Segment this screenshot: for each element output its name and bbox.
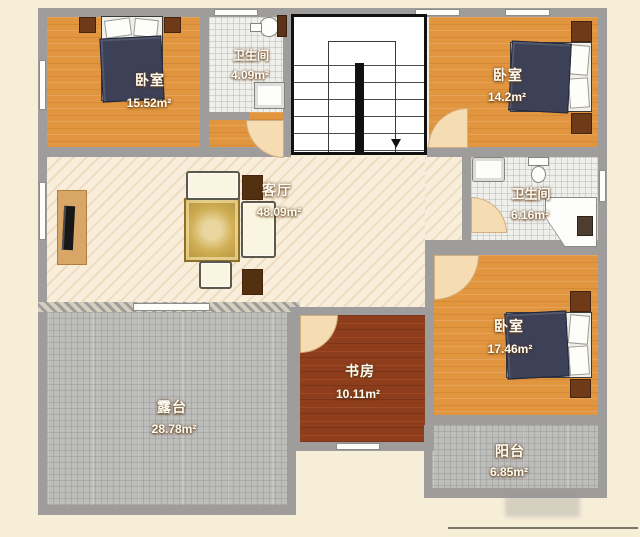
nightstand — [164, 17, 181, 33]
wall-study-left — [291, 307, 300, 449]
rug — [184, 198, 240, 262]
side-table — [242, 175, 263, 200]
shower-tray — [254, 82, 285, 109]
nightstand — [570, 379, 591, 398]
tv-icon — [62, 206, 75, 251]
room-area-bedroom-bottom-right: 17.46m² — [488, 342, 533, 356]
room-name-bathroom-right: 卫生间 — [511, 184, 550, 203]
sink — [472, 157, 505, 182]
room-area-bathroom-top: 4.09m² — [231, 68, 269, 82]
room-area-terrace: 28.78m² — [152, 422, 197, 436]
room-area-study: 10.11m² — [336, 387, 380, 401]
wall-study-top — [291, 307, 425, 315]
room-name-terrace: 露台 — [157, 397, 187, 417]
room-area-living-room: 48.09m² — [257, 205, 302, 219]
room-name-bedroom-top-right: 卧室 — [493, 65, 523, 85]
wall-bedroom3-bottom — [425, 415, 607, 425]
toilet-tank — [528, 157, 549, 166]
window-living-terrace — [133, 303, 210, 311]
wall-living-top-left — [38, 147, 291, 157]
room-area-balcony: 6.85m² — [490, 465, 528, 479]
floor-plan: 卧室 15.52m² 卫生间 4.09m² 卧室 14.2m² 客厅 48.09… — [0, 0, 640, 537]
watermark-smudge — [505, 493, 580, 517]
pillow — [104, 17, 132, 38]
nightstand — [570, 291, 591, 312]
bath-cabinet — [277, 15, 287, 37]
room-name-living-room: 客厅 — [262, 180, 292, 200]
nightstand — [571, 113, 592, 134]
pillow — [568, 314, 590, 345]
window-left-living — [39, 182, 46, 240]
bed-blanket — [99, 35, 164, 102]
room-name-study: 书房 — [345, 361, 375, 381]
window-right-bathroom — [599, 170, 606, 202]
wall-terrace-bottom — [38, 505, 296, 515]
armchair — [199, 261, 232, 289]
nightstand — [571, 21, 592, 42]
pillow — [568, 77, 590, 108]
wall-living-top-right — [427, 147, 607, 157]
room-name-bedroom-top-left: 卧室 — [135, 70, 165, 90]
wall-bedroom1-right — [200, 17, 209, 157]
room-area-bathroom-right: 6.16m² — [511, 208, 549, 222]
room-name-balcony: 阳台 — [495, 441, 525, 461]
side-table — [242, 269, 263, 295]
room-name-bathroom-top: 卫生间 — [233, 47, 269, 64]
living-room-floor-ext — [425, 157, 462, 245]
edge-line — [448, 527, 638, 529]
shower-seat — [577, 216, 593, 236]
pedestal-sink — [259, 17, 279, 37]
room-area-bedroom-top-right: 14.2m² — [488, 90, 526, 104]
window-study-bottom — [336, 443, 380, 450]
stair-center-rail — [355, 63, 364, 152]
stair-down-arrow-icon — [391, 139, 401, 148]
sink-pedestal-base — [250, 23, 262, 32]
wall-bathroom-top-bottom — [209, 112, 249, 120]
room-area-bedroom-top-left: 15.52m² — [127, 96, 172, 110]
window-top-bedroom2 — [505, 9, 550, 16]
window-top-bathroom — [214, 9, 258, 16]
nightstand — [79, 17, 96, 33]
sofa — [186, 171, 240, 200]
toilet-bowl — [531, 166, 546, 183]
window-left-bedroom1 — [39, 60, 46, 110]
staircase — [291, 14, 427, 155]
room-name-bedroom-bottom-right: 卧室 — [494, 316, 524, 336]
pillow — [568, 345, 590, 375]
wall-bathroom-right-left — [462, 157, 471, 245]
